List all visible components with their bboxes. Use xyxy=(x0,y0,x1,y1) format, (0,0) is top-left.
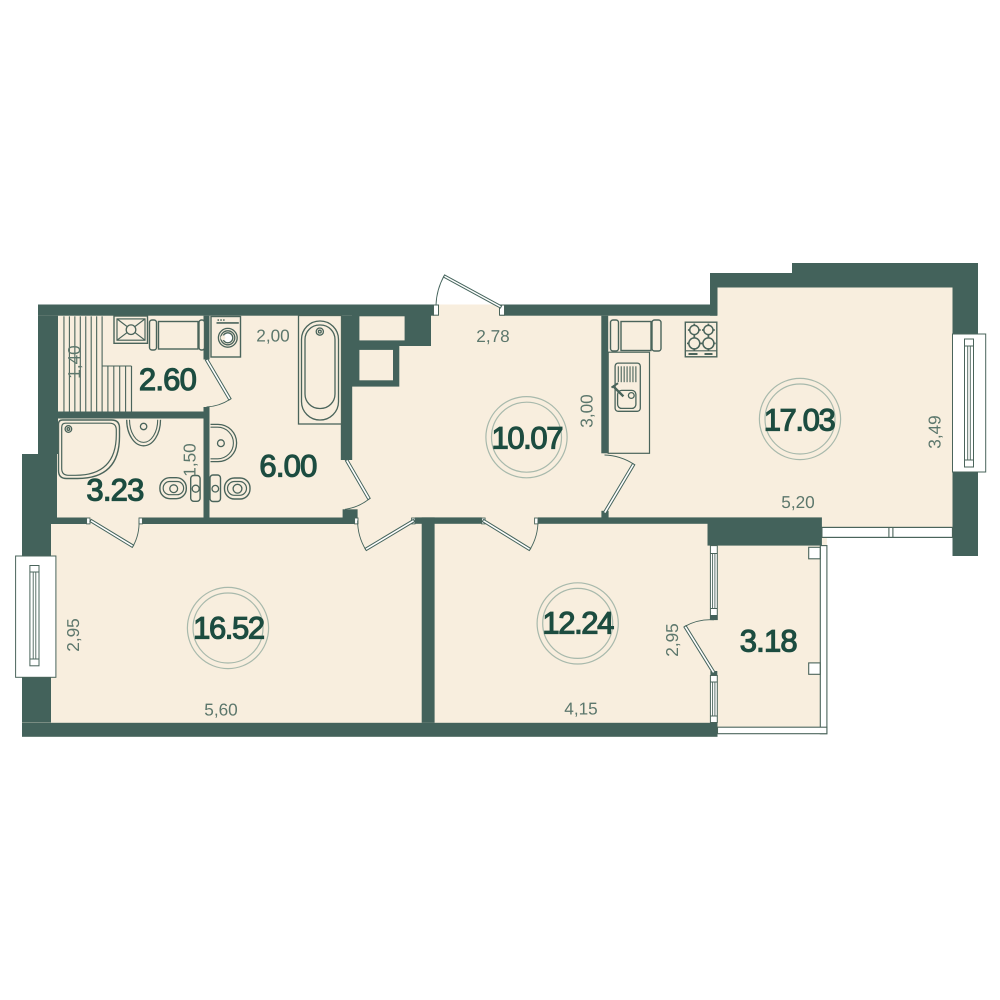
svg-text:3.18: 3.18 xyxy=(740,624,797,659)
svg-text:2.60: 2.60 xyxy=(139,362,197,397)
svg-text:5,60: 5,60 xyxy=(204,700,237,720)
svg-text:16.52: 16.52 xyxy=(193,611,264,646)
svg-text:10.07: 10.07 xyxy=(492,420,563,455)
svg-text:2,78: 2,78 xyxy=(476,326,509,346)
svg-text:3,00: 3,00 xyxy=(577,394,597,427)
svg-text:2,00: 2,00 xyxy=(256,326,289,346)
svg-text:2,95: 2,95 xyxy=(63,618,83,651)
svg-text:4,15: 4,15 xyxy=(564,699,597,719)
svg-text:2,95: 2,95 xyxy=(662,623,682,656)
svg-text:3.23: 3.23 xyxy=(86,473,143,508)
svg-text:5,20: 5,20 xyxy=(781,492,814,512)
svg-text:1,50: 1,50 xyxy=(180,443,200,476)
svg-text:3,49: 3,49 xyxy=(925,415,945,448)
svg-text:12.24: 12.24 xyxy=(542,606,614,641)
svg-text:17.03: 17.03 xyxy=(764,402,835,437)
svg-text:1,40: 1,40 xyxy=(64,345,84,378)
svg-text:6.00: 6.00 xyxy=(259,449,317,484)
